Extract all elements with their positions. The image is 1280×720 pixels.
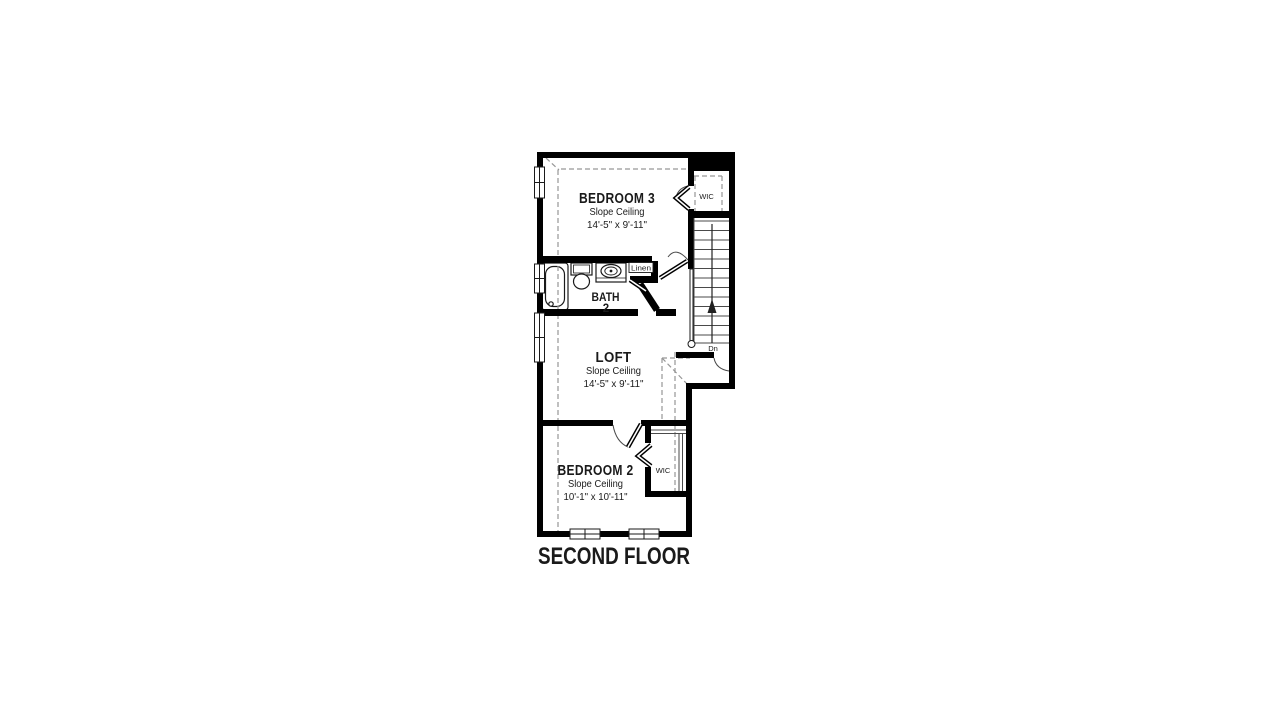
bedroom2-name: BEDROOM 2 <box>558 463 634 479</box>
stairs-down-label: Dn <box>708 344 718 353</box>
second-floor-plan: BEDROOM 3 Slope Ceiling 14'-5" x 9'-11" … <box>0 0 1280 720</box>
bedroom2-ceiling: Slope Ceiling <box>568 478 623 490</box>
stair-railing <box>690 269 693 343</box>
bathtub <box>542 263 568 310</box>
window-bedroom2-bottom-2 <box>629 529 659 539</box>
bedroom3-name: BEDROOM 3 <box>579 191 655 207</box>
bedroom3-ceiling: Slope Ceiling <box>590 206 645 218</box>
door-bedroom3 <box>660 252 688 278</box>
window-bedroom3-left <box>535 167 545 198</box>
plan-title: SECOND FLOOR <box>538 543 690 570</box>
newel-post <box>688 341 695 348</box>
loft-name: LOFT <box>596 350 632 366</box>
bedroom2-dimensions: 10'-1" x 10'-11" <box>564 491 628 503</box>
door-wic-upper <box>676 186 689 209</box>
window-loft-left <box>535 313 545 362</box>
window-bath-left <box>535 264 545 293</box>
wic-lower-shelving <box>651 430 686 491</box>
staircase <box>688 218 729 348</box>
loft-dimensions: 14'-5" x 9'-11" <box>584 378 644 390</box>
wic-lower-label: WIC <box>656 466 671 475</box>
bedroom3-dimensions: 14'-5" x 9'-11" <box>587 219 647 231</box>
door-bedroom2 <box>613 424 641 447</box>
window-bedroom2-bottom-1 <box>570 529 600 539</box>
door-stair-notch <box>714 358 729 371</box>
toilet <box>571 263 592 289</box>
wic-upper-label: WIC <box>699 192 714 201</box>
linen-label: Linen <box>631 264 651 273</box>
door-wic-lower <box>638 445 651 466</box>
loft-ceiling: Slope Ceiling <box>586 365 641 377</box>
floor-plan-canvas: BEDROOM 3 Slope Ceiling 14'-5" x 9'-11" … <box>0 0 1280 720</box>
bath2-label-line2: 2 <box>603 303 609 315</box>
vanity-sink <box>596 263 626 282</box>
